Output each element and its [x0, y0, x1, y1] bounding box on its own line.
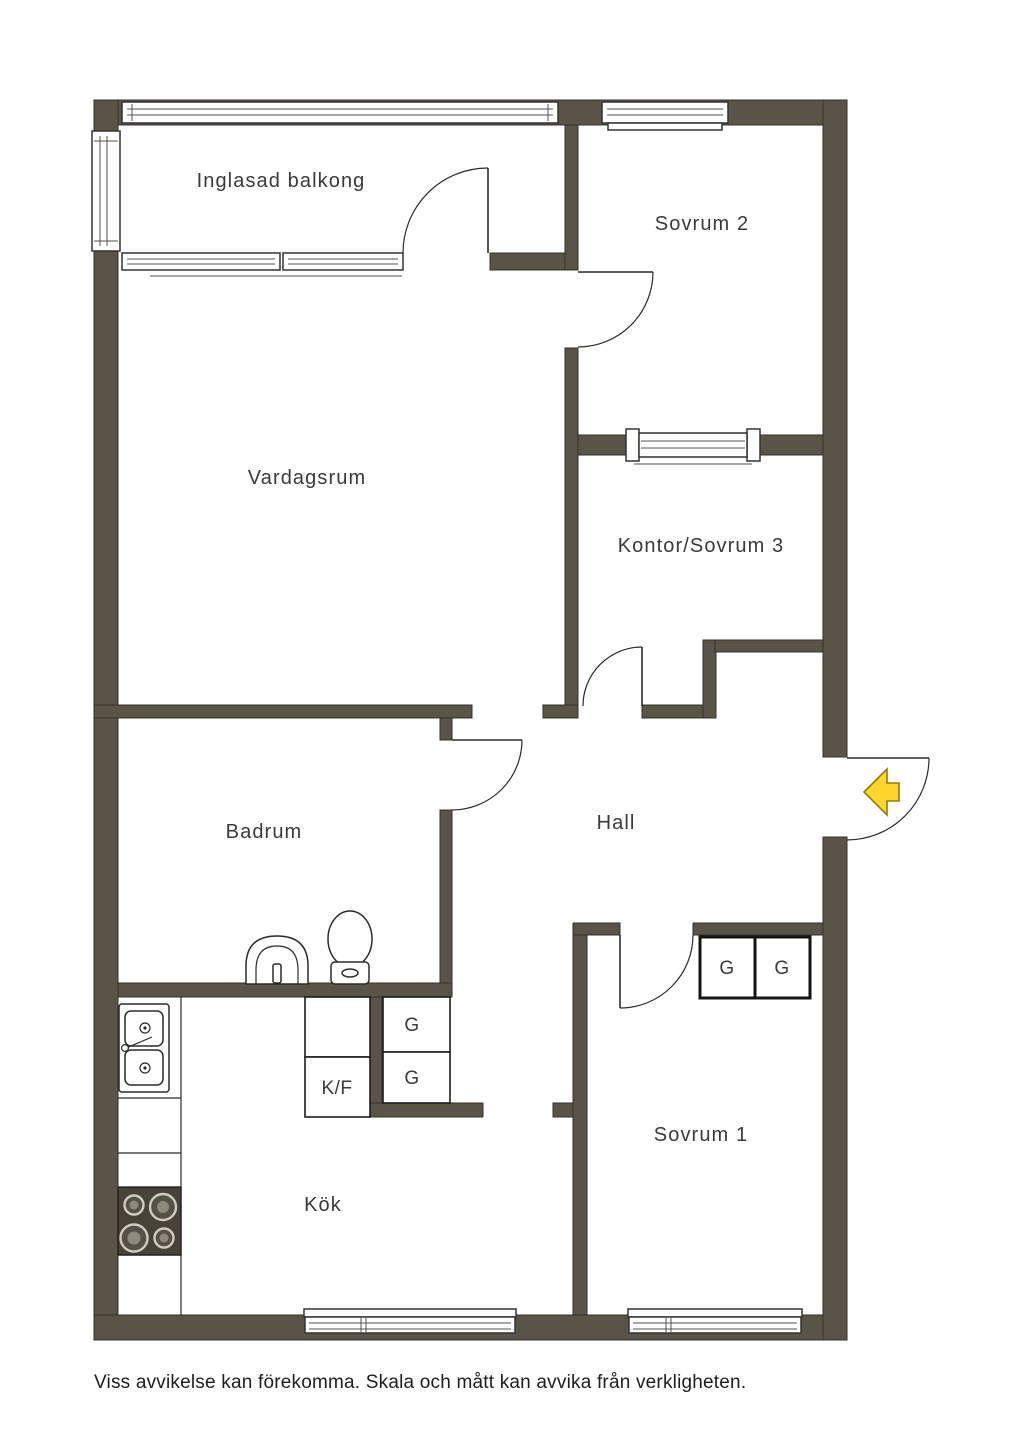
kitchen-bottom-window — [304, 1309, 516, 1333]
wall-divider-lower — [565, 348, 578, 705]
wall-bedroom1-north-right — [693, 923, 823, 935]
wall-living-south — [94, 705, 472, 718]
bedroom2-top-window — [602, 102, 728, 130]
wall-bedroom2-office-right — [758, 435, 823, 455]
wall-kf-divider — [370, 997, 382, 1117]
bedroom2-office-interior-window — [626, 429, 760, 464]
wall-exterior-right-upper — [823, 100, 847, 757]
wall-exterior-left — [94, 100, 118, 1340]
wall-office-south-right — [715, 640, 823, 652]
bathroom-fixtures — [246, 911, 372, 984]
room-label-balcony: Inglasad balkong — [197, 170, 366, 192]
wall-bathroom-east-lower — [440, 810, 452, 997]
room-label-living: Vardagsrum — [248, 467, 366, 489]
wall-bathroom-south — [118, 983, 452, 997]
fridge-freezer-unit: K/F — [305, 997, 370, 1117]
floor-plan-page: K/F G G G G Inglasad balkong Sovrum 2 Va… — [0, 0, 1024, 1448]
wall-bedroom1-north-left — [573, 923, 620, 935]
bedroom1-wardrobes: G G — [700, 937, 810, 998]
bathroom-door — [452, 740, 522, 810]
balcony-top-window — [122, 102, 558, 123]
room-label-kitchen: Kök — [304, 1194, 342, 1216]
fridge-freezer-label: K/F — [321, 1078, 352, 1099]
wall-bathroom-east-upper — [440, 718, 452, 740]
doors — [403, 168, 929, 1008]
kitchen-fixtures: K/F G G — [118, 997, 450, 1315]
wardrobe-label: G — [404, 1068, 419, 1089]
washbasin-icon — [246, 936, 308, 984]
walls — [94, 100, 847, 1340]
room-label-office: Kontor/Sovrum 3 — [618, 535, 785, 557]
stove-icon — [118, 1187, 181, 1255]
bedroom2-door — [578, 272, 653, 347]
floor-plan: K/F G G G G Inglasad balkong Sovrum 2 Va… — [0, 0, 1024, 1448]
wall-exterior-right-lower — [823, 837, 847, 1340]
room-label-bedroom2: Sovrum 2 — [655, 213, 749, 235]
room-label-bathroom: Badrum — [226, 821, 303, 843]
balcony-left-window — [92, 131, 120, 251]
bedroom1-bottom-window — [628, 1309, 802, 1333]
wall-bedroom2-office-left — [578, 435, 628, 455]
wall-living-south-stub — [543, 705, 578, 718]
balcony-door — [403, 168, 488, 253]
wardrobe-label: G — [774, 958, 789, 979]
kitchen-sink-icon — [119, 1004, 169, 1092]
wall-divider-upper — [565, 125, 578, 270]
bedroom1-door — [620, 935, 693, 1008]
wall-office-step — [703, 640, 716, 718]
room-label-bedroom1: Sovrum 1 — [654, 1124, 748, 1146]
toilet-icon — [328, 911, 372, 984]
disclaimer-text: Viss avvikelse kan förekomma. Skala och … — [94, 1372, 746, 1393]
wall-bedroom1-west — [573, 923, 587, 1315]
wardrobe-label: G — [404, 1015, 419, 1036]
kitchen-wardrobes: G G — [383, 997, 450, 1103]
wall-below-wardrobes — [370, 1103, 483, 1117]
room-label-hall: Hall — [597, 812, 636, 834]
wardrobe-label: G — [719, 958, 734, 979]
office-door — [583, 647, 642, 706]
room-labels: Inglasad balkong Sovrum 2 Vardagsrum Kon… — [197, 170, 785, 1216]
balcony-bottom-window-1 — [122, 253, 280, 270]
